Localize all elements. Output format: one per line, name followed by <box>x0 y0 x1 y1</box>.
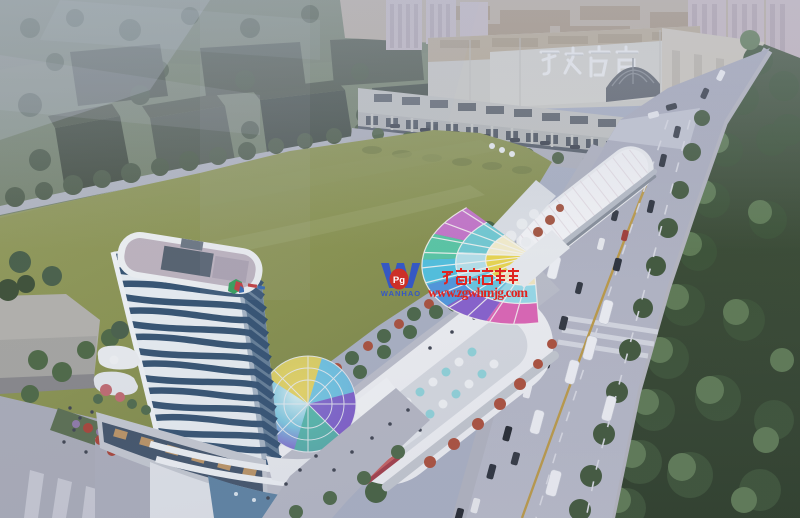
svg-text:Pg: Pg <box>393 275 405 286</box>
svg-text:WANHAO: WANHAO <box>381 289 421 298</box>
svg-text:www.zgwhmjg.com: www.zgwhmjg.com <box>428 285 529 300</box>
